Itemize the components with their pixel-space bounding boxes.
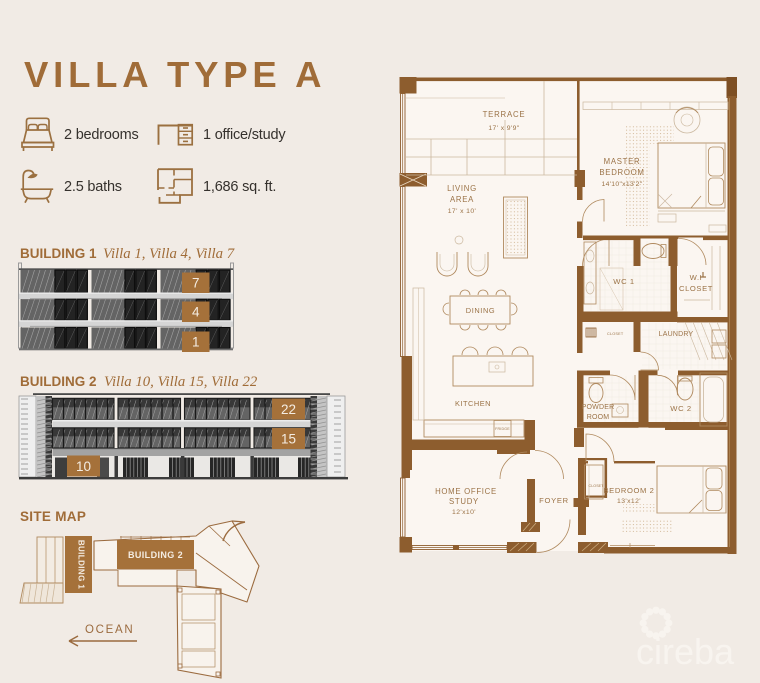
svg-text:BUILDING 2: BUILDING 2: [128, 550, 183, 560]
svg-text:SITE MAP: SITE MAP: [20, 509, 86, 524]
svg-text:WC 2: WC 2: [670, 404, 691, 413]
svg-text:12'x10': 12'x10': [452, 509, 476, 516]
svg-text:22: 22: [281, 402, 296, 417]
svg-text:DINING: DINING: [466, 306, 495, 315]
svg-text:POWDER: POWDER: [582, 404, 615, 411]
svg-text:14'10"x13'2": 14'10"x13'2": [602, 181, 643, 188]
svg-text:BEDROOM: BEDROOM: [599, 168, 644, 177]
svg-text:10: 10: [76, 459, 91, 474]
svg-text:ROOM: ROOM: [587, 414, 610, 421]
svg-text:cireba: cireba: [636, 631, 735, 672]
svg-text:WC 1: WC 1: [613, 277, 634, 286]
svg-text:17' x 9'9": 17' x 9'9": [488, 125, 519, 132]
svg-text:1 office/study: 1 office/study: [203, 127, 286, 143]
svg-text:2.5 baths: 2.5 baths: [64, 179, 122, 195]
svg-text:OCEAN: OCEAN: [85, 624, 134, 636]
svg-text:HOME OFFICE: HOME OFFICE: [435, 487, 497, 496]
svg-text:BEDROOM 2: BEDROOM 2: [604, 486, 655, 495]
svg-text:CLOSET: CLOSET: [679, 284, 713, 293]
svg-text:CLOSET: CLOSET: [607, 332, 624, 336]
svg-text:17' x 10': 17' x 10': [448, 208, 477, 215]
svg-text:STUDY: STUDY: [449, 497, 479, 506]
svg-text:Villa 1, Villa 4, Villa 7: Villa 1, Villa 4, Villa 7: [103, 246, 235, 262]
svg-text:LIVING: LIVING: [447, 184, 477, 193]
svg-text:VILLA TYPE A: VILLA TYPE A: [24, 54, 326, 95]
svg-text:KITCHEN: KITCHEN: [455, 399, 491, 408]
svg-text:FRIDGE: FRIDGE: [495, 427, 510, 431]
svg-text:AREA: AREA: [450, 195, 474, 204]
svg-text:LAUNDRY: LAUNDRY: [659, 331, 694, 338]
svg-text:BUILDING 2: BUILDING 2: [20, 374, 97, 389]
svg-text:4: 4: [192, 305, 200, 320]
svg-text:Villa 10, Villa 15, Villa 22: Villa 10, Villa 15, Villa 22: [104, 374, 258, 390]
svg-text:FOYER: FOYER: [539, 496, 569, 505]
svg-text:1: 1: [192, 335, 200, 350]
svg-text:MASTER: MASTER: [604, 157, 641, 166]
svg-text:1,686 sq. ft.: 1,686 sq. ft.: [203, 179, 276, 195]
svg-text:15: 15: [281, 432, 296, 447]
svg-text:7: 7: [192, 276, 200, 291]
svg-text:13'x12': 13'x12': [617, 498, 641, 505]
svg-text:TERRACE: TERRACE: [483, 110, 526, 119]
svg-text:2 bedrooms: 2 bedrooms: [64, 127, 139, 143]
svg-text:BUILDING 1: BUILDING 1: [20, 246, 97, 261]
svg-text:BUILDING 1: BUILDING 1: [77, 540, 86, 589]
svg-text:CLOSET: CLOSET: [589, 484, 605, 488]
